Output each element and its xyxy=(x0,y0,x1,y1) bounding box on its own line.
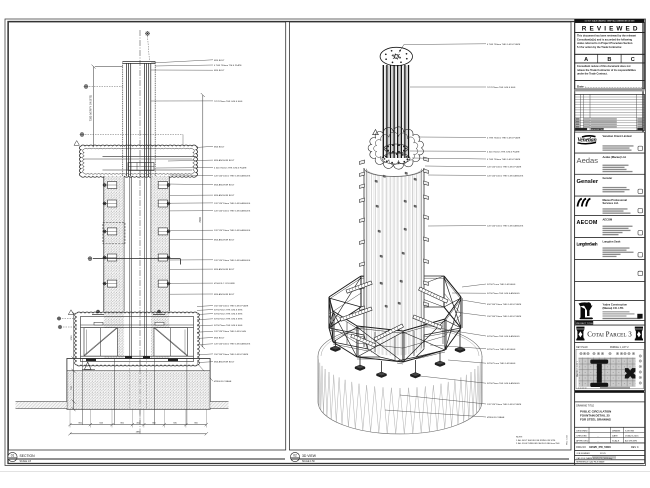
svg-text:Ø2500 R.C BASE: Ø2500 R.C BASE xyxy=(487,416,505,419)
svg-text:DESIGNED: DESIGNED xyxy=(576,430,588,432)
svg-text:120*120*10mm THK G.M.S ANGLES: 120*120*10mm THK G.M.S ANGLES xyxy=(214,210,251,213)
svg-text:PROJECT TITLE: PROJECT TITLE xyxy=(576,323,593,325)
svg-text:M16 ANCHOR BOLT: M16 ANCHOR BOLT xyxy=(214,184,235,187)
svg-text:DRAWN: DRAWN xyxy=(612,429,621,432)
svg-text:150*150*10mm THK G.M.S PLATE: 150*150*10mm THK G.M.S PLATE xyxy=(214,305,249,308)
svg-text:120*120*10mm THK G.M.S ANGLES: 120*120*10mm THK G.M.S ANGLES xyxy=(487,225,524,228)
svg-text:01: 01 xyxy=(11,454,15,458)
svg-text:3D VIEW: 3D VIEW xyxy=(302,454,317,458)
svg-text:31525_PD_5000: 31525_PD_5000 xyxy=(589,445,611,449)
svg-text:4 THK 750mm T.M.S PLATE: 4 THK 750mm T.M.S PLATE xyxy=(214,64,242,67)
svg-text:This document has been reviewe: This document has been reviewed by the r… xyxy=(577,35,636,38)
svg-text:status referred to in Projec: status referred to in Project Procedure … xyxy=(577,42,633,45)
svg-text:Services Ltd.: Services Ltd. xyxy=(603,201,619,205)
svg-text:REFERENCE CAD FILE NAME: REFERENCE CAD FILE NAME xyxy=(576,461,605,464)
svg-text:B: B xyxy=(607,57,611,63)
svg-text:M16 ANCHOR BOLT: M16 ANCHOR BOLT xyxy=(214,239,235,242)
svg-text:Aedas: Aedas xyxy=(577,156,599,165)
svg-text:SCALE 1:50: SCALE 1:50 xyxy=(302,460,315,463)
svg-text:under the Trade Contract.: under the Trade Contract. xyxy=(577,73,608,76)
svg-text:C: C xyxy=(631,57,635,63)
svg-text:4 THK 750mm THK G.M.S PLATE: 4 THK 750mm THK G.M.S PLATE xyxy=(487,43,521,46)
svg-text:120*120*10mm THK G.M.S ANGLES: 120*120*10mm THK G.M.S ANGLES xyxy=(487,174,524,177)
svg-text:M16 BOLT: M16 BOLT xyxy=(214,146,225,148)
svg-text:50*50*5mm THK G.M.S SHS: 50*50*5mm THK G.M.S SHS xyxy=(214,314,243,316)
svg-text:M16 BOLT: M16 BOLT xyxy=(214,337,225,339)
svg-text:Date :: Date : xyxy=(577,85,586,89)
svg-text:0 10 25 50: 0 10 25 50 xyxy=(578,387,587,389)
svg-text:CAD FILE NAME: CAD FILE NAME xyxy=(576,457,593,460)
svg-text:1. ALL BOLT SHOULD BE FIXING O: 1. ALL BOLT SHOULD BE FIXING ON SITE. xyxy=(516,439,556,442)
svg-text:5.4 for action by the Trade Co: 5.4 for action by the Trade Contractor. xyxy=(577,46,622,49)
svg-text:50*50*5mm THK G.M.S ANGLES: 50*50*5mm THK G.M.S ANGLES xyxy=(487,335,520,338)
svg-text:SCALE: SCALE xyxy=(612,440,620,443)
svg-text:50*50*5 mm THK G.M.SSHS: 50*50*5 mm THK G.M.SSHS xyxy=(487,349,516,351)
svg-text:50*50*5mm THK G.M.S SHS: 50*50*5mm THK G.M.S SHS xyxy=(214,325,243,327)
svg-text:4 500 750mm THK G.M.S PLATE: 4 500 750mm THK G.M.S PLATE xyxy=(214,167,247,170)
svg-text:SCALE 1:8: SCALE 1:8 xyxy=(20,460,32,463)
svg-text:DESCRIPTION: DESCRIPTION xyxy=(591,129,605,131)
svg-text:DATE: DATE xyxy=(612,435,618,438)
svg-text:120*120*10mm THK G.M.S ANGLES: 120*120*10mm THK G.M.S ANGLES xyxy=(214,202,251,205)
svg-text:M16 BOLT: M16 BOLT xyxy=(214,70,225,72)
svg-text:DWG NO: DWG NO xyxy=(576,447,586,449)
svg-text:70*70*6mm THK G.M.S SHS: 70*70*6mm THK G.M.S SHS xyxy=(487,87,516,89)
svg-text:CHECKED: CHECKED xyxy=(576,436,587,438)
svg-text:M16 BOLT: M16 BOLT xyxy=(214,60,225,62)
svg-text:AS SHOWN: AS SHOWN xyxy=(625,440,637,443)
svg-text:Langdon Seah: Langdon Seah xyxy=(603,239,621,243)
svg-text:COTAI PARCEL 3: COTAI PARCEL 3 xyxy=(587,330,632,338)
svg-text:relieve the Trade Contractor o: relieve the Trade Contractor of its resp… xyxy=(577,69,637,72)
svg-text:Ø 500 R.C COLUMN: Ø 500 R.C COLUMN xyxy=(214,283,235,285)
svg-text:M16 ANCHOR BOLT: M16 ANCHOR BOLT xyxy=(214,361,235,364)
svg-text:50*50*5mm THK G.M.S SHS: 50*50*5mm THK G.M.S SHS xyxy=(214,319,243,321)
svg-text:50*50*5mm THK G.M.S ANGLES: 50*50*5mm THK G.M.S ANGLES xyxy=(487,382,520,385)
svg-text:120*120*10mm THK G.M.S ANGLES: 120*120*10mm THK G.M.S ANGLES xyxy=(214,343,251,346)
svg-text:AECOM: AECOM xyxy=(603,217,613,221)
svg-text:M16 ANCHOR BOLT: M16 ANCHOR BOLT xyxy=(214,194,235,197)
svg-text:120*120*10mm THK G.M.S ANGLES: 120*120*10mm THK G.M.S ANGLES xyxy=(214,174,251,177)
svg-text:150*150*10mm THK G.M.S PLATE: 150*150*10mm THK G.M.S PLATE xyxy=(214,353,249,356)
svg-text:4 THK 750mm THK G.M.S PLATE: 4 THK 750mm THK G.M.S PLATE xyxy=(487,136,521,139)
svg-text:PARCEL 1, LOT 1: PARCEL 1, LOT 1 xyxy=(576,360,579,377)
svg-text:(Macau) CO. LTD.: (Macau) CO. LTD. xyxy=(603,306,625,310)
svg-text:S.WONG: S.WONG xyxy=(625,430,634,432)
svg-text:Consultant(s)(s) and is accord: Consultant(s)(s) and is accorded the fol… xyxy=(577,38,632,41)
svg-text:KEY PLAN: KEY PLAN xyxy=(576,346,588,349)
svg-text:FOR STEEL DRAWING: FOR STEEL DRAWING xyxy=(580,418,612,422)
svg-text:Yudee Construction: Yudee Construction xyxy=(603,302,628,306)
svg-text:120*120*10mm THK G.M.S SHS: 120*120*10mm THK G.M.S SHS xyxy=(214,331,246,333)
svg-text:REVIEWED: REVIEWED xyxy=(582,26,641,33)
svg-text:450*150*10mm THK G.M.S PLATE: 450*150*10mm THK G.M.S PLATE xyxy=(487,303,522,306)
svg-text:150*150*10mm THK G.M.S PLATE: 150*150*10mm THK G.M.S PLATE xyxy=(487,315,522,318)
svg-text:M16 ANCHOR BOLT: M16 ANCHOR BOLT xyxy=(214,159,235,162)
svg-text:120*120*10mm THK G.M.S PLATE: 120*120*10mm THK G.M.S PLATE xyxy=(487,166,522,169)
svg-text:50*50*5 mm THK G.M.SSHS: 50*50*5 mm THK G.M.SSHS xyxy=(487,363,516,365)
svg-text:70*70*6mm THK G.M.S SHS: 70*70*6mm THK G.M.S SHS xyxy=(214,101,243,103)
svg-text:A: A xyxy=(584,57,588,63)
svg-text:120*120*10mm THK G.M.S ANGLES: 120*120*10mm THK G.M.S ANGLES xyxy=(214,229,251,232)
svg-text:4 THK 750mm THK G.M.S PLATE: 4 THK 750mm THK G.M.S PLATE xyxy=(487,158,521,161)
svg-text:PML 31525: PML 31525 xyxy=(567,434,569,445)
svg-text:AECOM: AECOM xyxy=(577,220,598,226)
svg-text:Venetian Orient Limited: Venetian Orient Limited xyxy=(603,134,632,138)
svg-text:DRAWING TITLE: DRAWING TITLE xyxy=(576,404,594,407)
svg-text:1760: 1760 xyxy=(71,335,73,341)
svg-text:02: 02 xyxy=(293,454,297,458)
svg-text:Gensler: Gensler xyxy=(603,176,613,180)
svg-text:120*120*10mm THK G.M.S PLATE: 120*120*10mm THK G.M.S PLATE xyxy=(487,403,522,406)
svg-text:PARCEL 1, LOT 2: PARCEL 1, LOT 2 xyxy=(610,346,629,349)
svg-text:2. ALL FILLET WELDED SHOULD BE: 2. ALL FILLET WELDED SHOULD BE 6mm THK. xyxy=(516,442,560,445)
svg-text:7300: 7300 xyxy=(199,217,202,223)
svg-text:NOTE:: NOTE: xyxy=(516,437,523,439)
svg-text:7300 (VERIFY ON SITE): 7300 (VERIFY ON SITE) xyxy=(90,95,93,122)
svg-text:Consultant review of this docu: Consultant review of this document does … xyxy=(577,65,631,68)
svg-text:50*50*5mm THK G.M.S ANGLES: 50*50*5mm THK G.M.S ANGLES xyxy=(487,292,520,295)
svg-text:JOB NUMBER: JOB NUMBER xyxy=(576,453,590,455)
svg-text:SECTION: SECTION xyxy=(20,454,36,458)
svg-text:4 500 750mm THK G.M.S PLATE: 4 500 750mm THK G.M.S PLATE xyxy=(487,150,520,153)
svg-text:Ø2500 R.C BASE: Ø2500 R.C BASE xyxy=(214,380,232,383)
svg-text:19-AUG-2015: 19-AUG-2015 xyxy=(625,435,639,438)
svg-text:Aedas (Macau) Ltd.: Aedas (Macau) Ltd. xyxy=(603,155,627,159)
svg-text:REV C: REV C xyxy=(631,446,639,449)
svg-text:50*50*5 mm THK G.M.SSHS: 50*50*5 mm THK G.M.SSHS xyxy=(487,284,516,286)
svg-text:M16 ANCHOR BOLT: M16 ANCHOR BOLT xyxy=(214,268,235,271)
svg-text:31525: 31525 xyxy=(600,453,607,455)
svg-text:Gensler: Gensler xyxy=(577,179,599,185)
svg-text:M16 ANCHOR BOLT: M16 ANCHOR BOLT xyxy=(214,293,235,296)
svg-text:120*120*10mm THK G.M.S ANGLES: 120*120*10mm THK G.M.S ANGLES xyxy=(214,259,251,262)
svg-text:LangdonSeah: LangdonSeah xyxy=(577,242,598,247)
svg-text:50*50*5mm THK G.M.S SHS: 50*50*5mm THK G.M.S SHS xyxy=(214,309,243,311)
svg-text:APPROVED: APPROVED xyxy=(576,440,589,443)
